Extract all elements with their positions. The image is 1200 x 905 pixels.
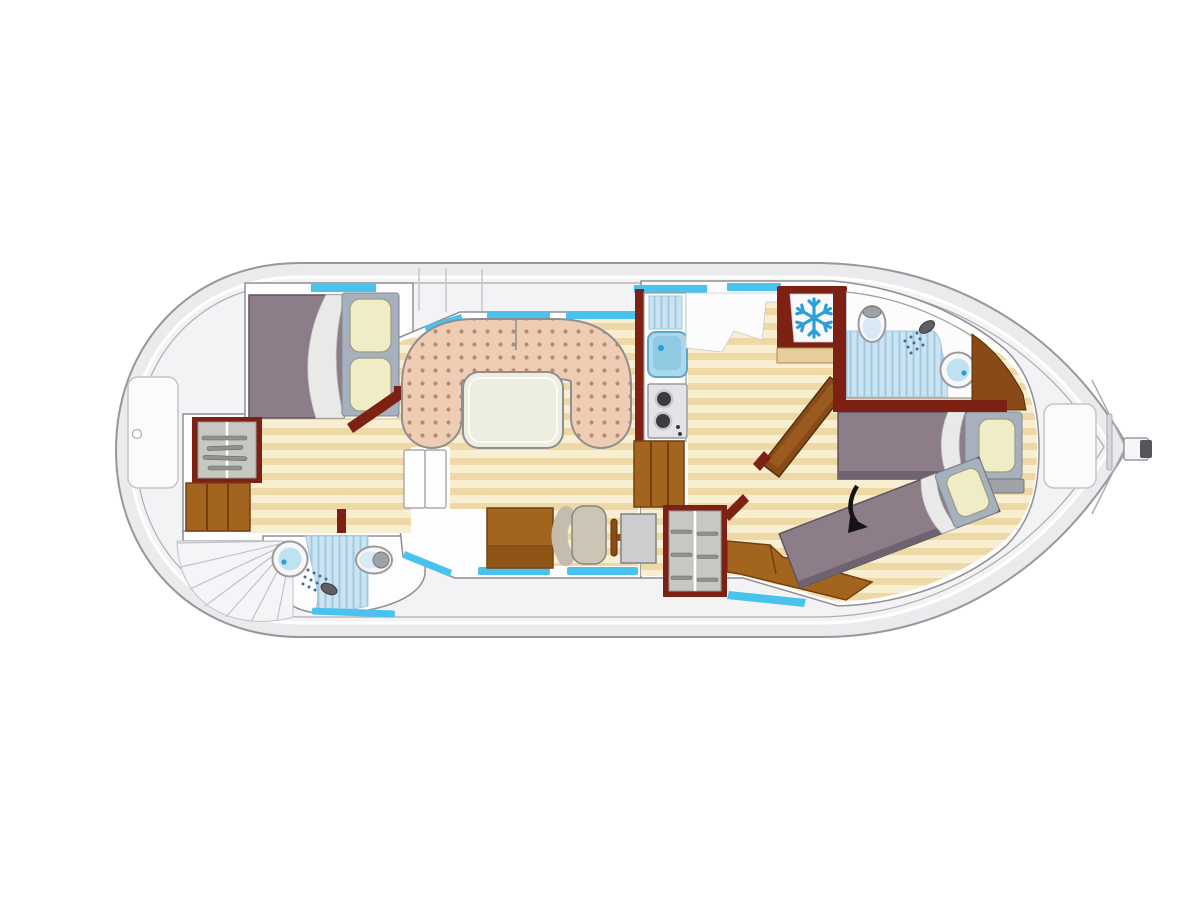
helm-bench (487, 508, 553, 568)
dinette-table (463, 372, 563, 448)
stove (648, 384, 687, 438)
storage-cupboard (404, 450, 446, 508)
rudder-cap (1140, 440, 1152, 458)
front-cabin-wall-stub (337, 509, 346, 533)
helm-chair (560, 506, 607, 564)
front-washbasin (273, 542, 308, 577)
boat-floorplan (0, 0, 1200, 900)
aft-bathroom-wall-left (833, 292, 846, 412)
front-wardrobe (192, 417, 262, 483)
aft-bed-upper (838, 412, 1022, 479)
saloon-window-3 (566, 311, 639, 319)
front-cabin-floor (249, 418, 411, 533)
front-cabin-window (311, 284, 376, 292)
fridge-counter (777, 348, 841, 363)
galley-wall (635, 289, 644, 441)
aft-bathroom-wall-bottom (833, 400, 1007, 412)
galley-window-2 (727, 283, 781, 291)
bow-hatch (1044, 404, 1096, 488)
saloon-window-5 (567, 567, 638, 575)
front-toilet (356, 547, 392, 574)
helm-console (621, 514, 656, 563)
bow-slot (1107, 414, 1112, 470)
drainer (649, 296, 682, 329)
aft-washbasin (941, 353, 976, 388)
front-cabinet (186, 483, 250, 531)
aft-shower-tray (847, 331, 951, 397)
chair-backrest (560, 514, 567, 558)
galley-sink (648, 332, 687, 377)
saloon-window-2 (487, 311, 550, 319)
stern-hatch-knob (133, 430, 142, 439)
chair-seat (572, 506, 606, 564)
front-bed-pillow-1 (350, 299, 391, 352)
galley-cabinet (634, 441, 684, 507)
galley-window-1 (634, 285, 707, 293)
aft-toilet (859, 306, 886, 342)
